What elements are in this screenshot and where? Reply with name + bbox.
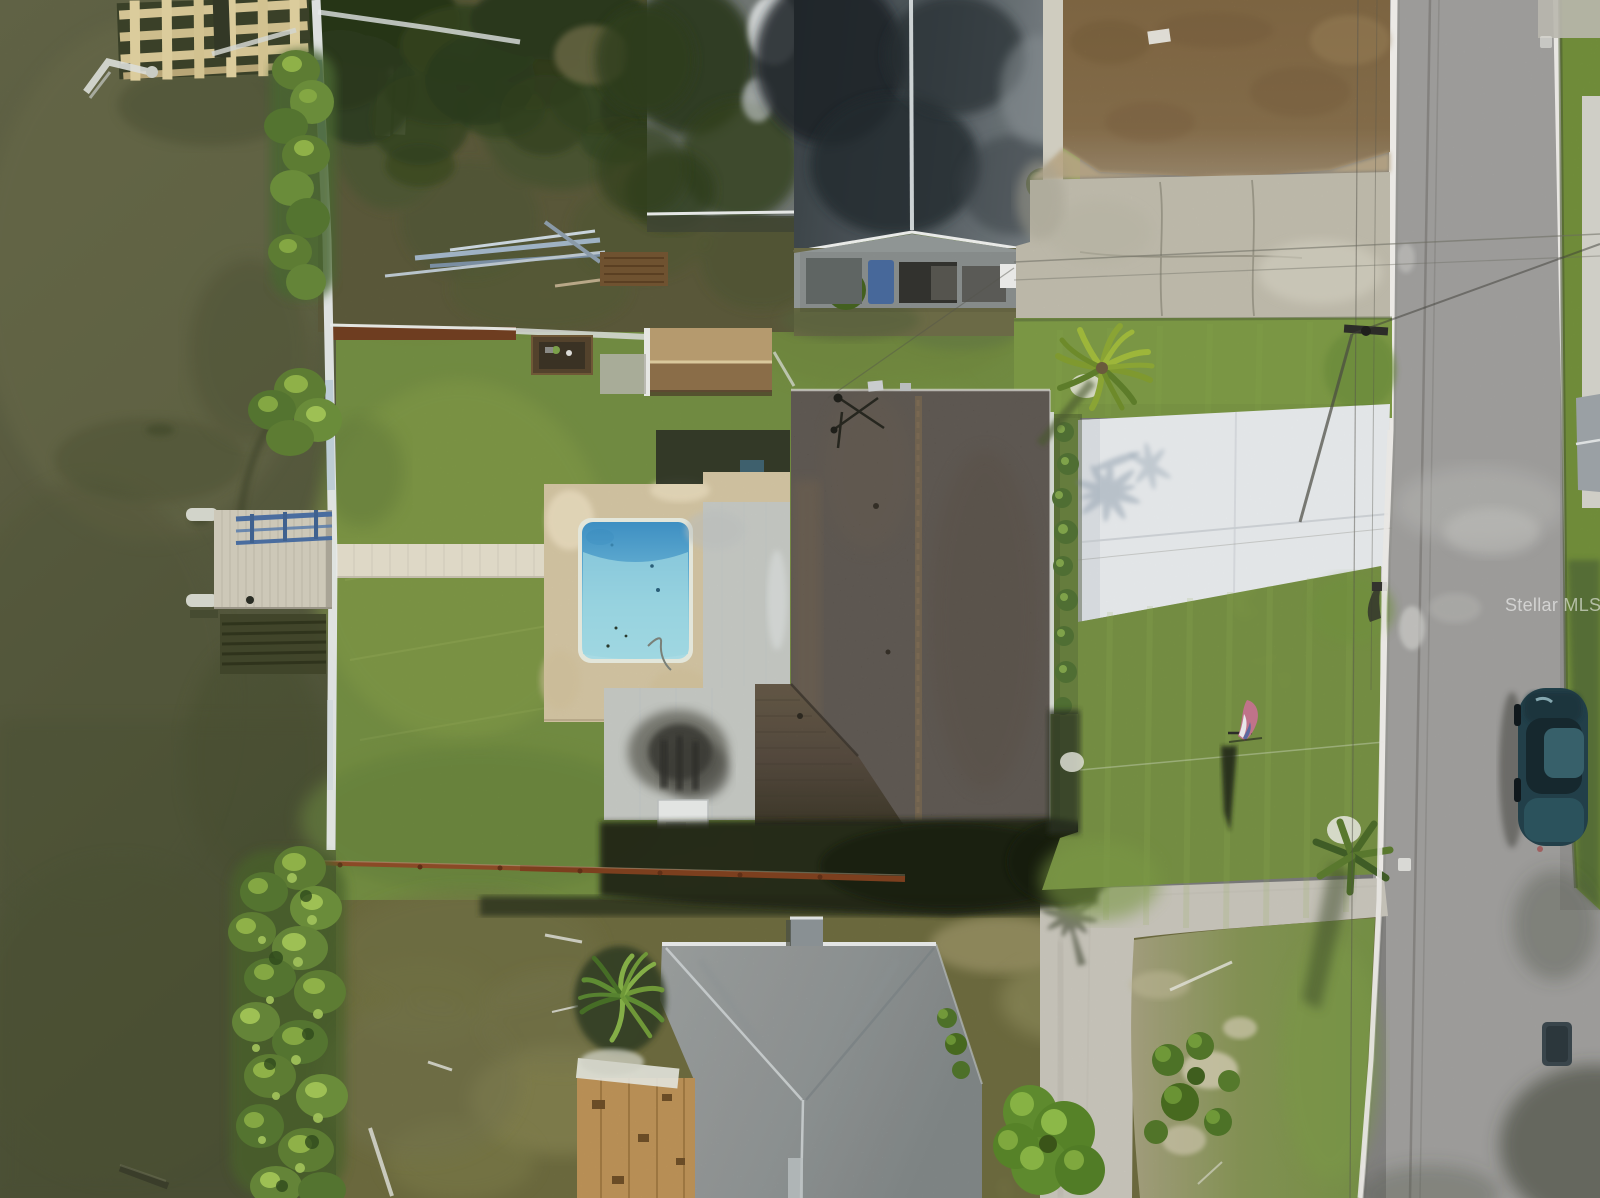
svg-text:Stellar MLS: Stellar MLS [1505, 595, 1600, 615]
